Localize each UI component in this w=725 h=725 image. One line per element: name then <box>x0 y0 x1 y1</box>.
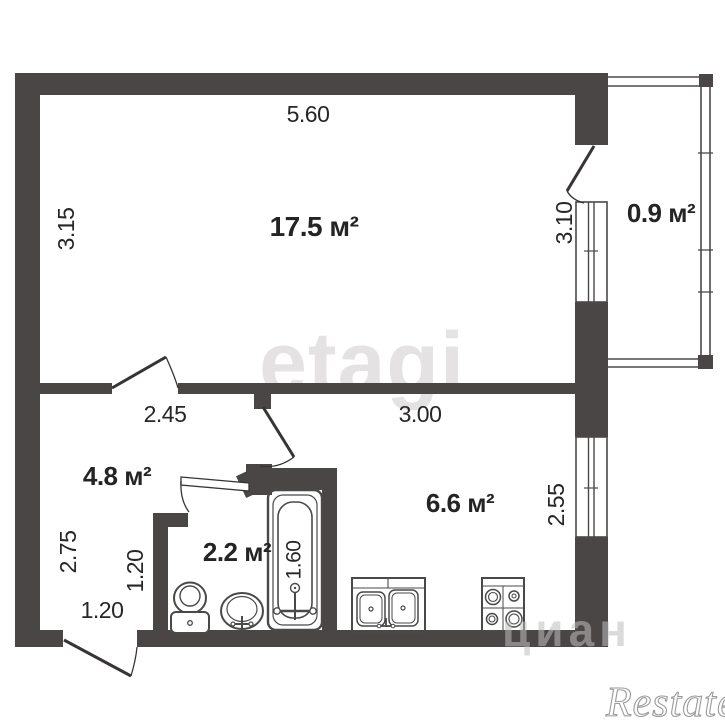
dim-balcony-window: 3.10 <box>551 202 577 245</box>
wall-bath-right <box>322 468 337 633</box>
dim-kitchen-top: 3.00 <box>399 401 442 427</box>
dim-living-top: 5.60 <box>287 101 330 127</box>
watermark-restate: Restate <box>605 680 725 725</box>
floor-plan: etagi <box>0 0 725 725</box>
wall-divider-right <box>178 383 575 394</box>
window-living <box>576 202 607 302</box>
dim-hallway-top: 2.45 <box>144 401 187 427</box>
dim-hallway-inner: 1.20 <box>122 550 148 593</box>
dim-entrance: 1.20 <box>81 597 124 623</box>
label-bathroom-area: 2.2 м² <box>203 537 272 567</box>
label-balcony-area: 0.9 м² <box>627 198 696 228</box>
balcony-post-top <box>699 74 713 87</box>
wall-divider-left <box>40 383 112 394</box>
wall-bath-top-left <box>153 513 188 527</box>
label-kitchen-area: 6.6 м² <box>426 488 495 518</box>
label-living-area: 17.5 м² <box>270 211 359 242</box>
window-kitchen <box>576 437 607 537</box>
wall-kitchen-door-stub <box>254 383 271 409</box>
dim-kitchen-right: 2.55 <box>543 484 569 527</box>
wall-right-middle <box>575 302 608 437</box>
dim-bathtub: 1.60 <box>283 541 306 580</box>
dim-living-left: 3.15 <box>53 208 79 251</box>
wall-right-upper <box>575 73 608 145</box>
wall-top <box>15 73 608 95</box>
balcony-post-bottom <box>698 355 713 369</box>
wall-bath-left <box>153 513 168 633</box>
watermark-etagi: etagi <box>259 315 465 411</box>
wall-left <box>15 73 40 647</box>
floor-plan-canvas: etagi <box>0 0 725 725</box>
label-hallway-area: 4.8 м² <box>83 461 152 491</box>
wall-bottom-left <box>15 630 63 647</box>
toilet <box>171 583 209 634</box>
watermark-cian: циан <box>502 604 632 656</box>
wash-basin <box>221 593 263 629</box>
dim-hallway-left: 2.75 <box>55 531 81 574</box>
